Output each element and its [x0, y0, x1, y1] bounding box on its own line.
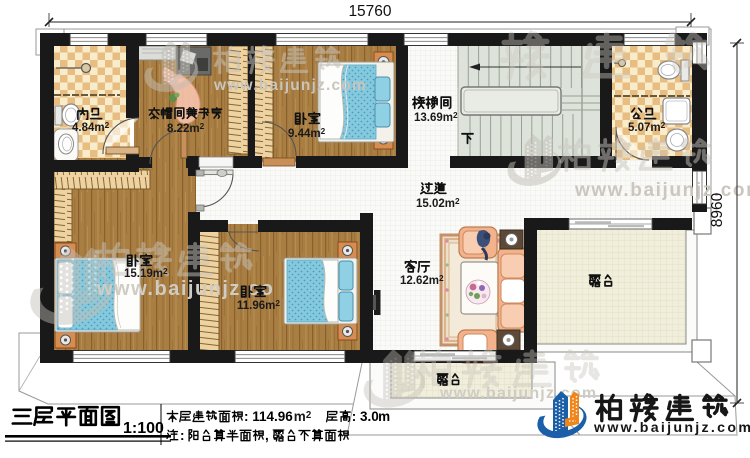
svg-text:: 114.96: : 114.96: [244, 409, 293, 424]
svg-text:15760: 15760: [348, 3, 391, 20]
svg-text:13.69m2: 13.69m2: [414, 110, 458, 124]
svg-text:www.baijunjz.co: www.baijunjz.co: [96, 278, 274, 300]
svg-text:8.22m2: 8.22m2: [167, 121, 205, 135]
svg-text:11.96m2: 11.96m2: [237, 298, 280, 312]
svg-text:15.02m2: 15.02m2: [416, 196, 460, 210]
svg-text:www.baijunjz.com: www.baijunjz.com: [593, 420, 750, 436]
svg-text:www.baijunjz.com: www.baijunjz.com: [213, 77, 367, 94]
svg-text:8960: 8960: [709, 192, 726, 227]
svg-text:1:100: 1:100: [123, 420, 164, 437]
svg-text::: :: [180, 428, 185, 443]
svg-text:: 3.0: : 3.0: [352, 409, 379, 424]
svg-text:,: ,: [265, 428, 269, 443]
svg-text:m: m: [378, 409, 390, 424]
svg-text:5.07m2: 5.07m2: [628, 120, 666, 134]
svg-text:9.44m2: 9.44m2: [288, 126, 326, 140]
svg-text:15.19m2: 15.19m2: [124, 266, 168, 280]
svg-text:12.62m2: 12.62m2: [400, 273, 444, 287]
svg-text:4.84m2: 4.84m2: [72, 120, 110, 134]
